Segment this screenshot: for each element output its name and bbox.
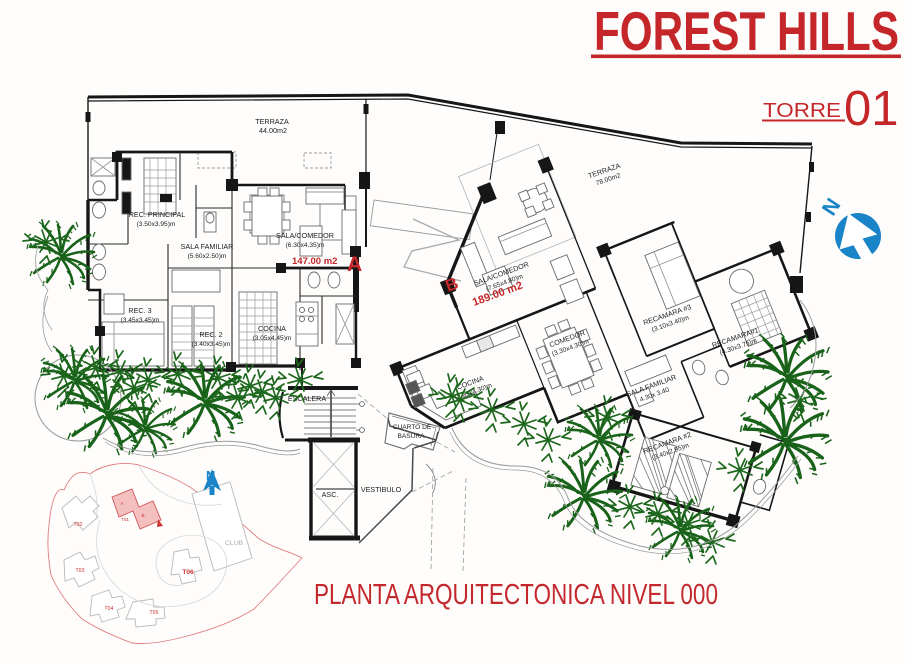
svg-text:REC. 2: REC. 2 bbox=[199, 330, 222, 339]
svg-text:T05: T05 bbox=[150, 610, 159, 616]
svg-text:SALA/COMEDOR: SALA/COMEDOR bbox=[276, 231, 334, 240]
svg-text:FOREST HILLS: FOREST HILLS bbox=[594, 0, 899, 62]
svg-text:44.00m2: 44.00m2 bbox=[259, 126, 287, 135]
svg-text:CLUB: CLUB bbox=[225, 540, 244, 547]
svg-text:COCINA: COCINA bbox=[258, 324, 286, 333]
svg-text:(3.40x3.45)m: (3.40x3.45)m bbox=[192, 341, 231, 348]
svg-text:T04: T04 bbox=[105, 606, 114, 612]
svg-text:147.00 m2: 147.00 m2 bbox=[292, 256, 337, 267]
svg-text:B: B bbox=[141, 513, 144, 518]
svg-text:(3.50x3.95)m: (3.50x3.95)m bbox=[137, 221, 176, 228]
svg-text:T02: T02 bbox=[74, 522, 83, 528]
svg-text:(3.05x4.45)m: (3.05x4.45)m bbox=[253, 335, 292, 342]
svg-text:A: A bbox=[347, 253, 362, 276]
svg-text:CUARTO DE: CUARTO DE bbox=[393, 424, 432, 431]
svg-text:TERRAZA: TERRAZA bbox=[255, 117, 289, 126]
svg-text:T03: T03 bbox=[76, 568, 85, 574]
svg-text:VESTIBULO: VESTIBULO bbox=[361, 485, 402, 494]
svg-text:TORRE: TORRE bbox=[763, 99, 841, 122]
svg-text:T01: T01 bbox=[121, 517, 129, 522]
svg-text:ASC.: ASC. bbox=[322, 490, 339, 499]
svg-text:(6.30x4.35)m: (6.30x4.35)m bbox=[286, 242, 325, 249]
svg-text:(3.45x3.45)m: (3.45x3.45)m bbox=[121, 317, 160, 324]
svg-text:REC. 3: REC. 3 bbox=[128, 306, 151, 315]
svg-text:01: 01 bbox=[844, 82, 899, 136]
svg-text:REC. PRINCIPAL: REC. PRINCIPAL bbox=[129, 210, 186, 219]
svg-text:BASURA: BASURA bbox=[397, 433, 425, 440]
svg-text:T06: T06 bbox=[182, 569, 194, 576]
svg-text:(5.60x2.50)m: (5.60x2.50)m bbox=[188, 253, 227, 260]
svg-text:SALA FAMILIAR: SALA FAMILIAR bbox=[181, 242, 234, 251]
svg-text:PLANTA ARQUITECTONICA NIVEL 00: PLANTA ARQUITECTONICA NIVEL 000 bbox=[314, 579, 718, 611]
